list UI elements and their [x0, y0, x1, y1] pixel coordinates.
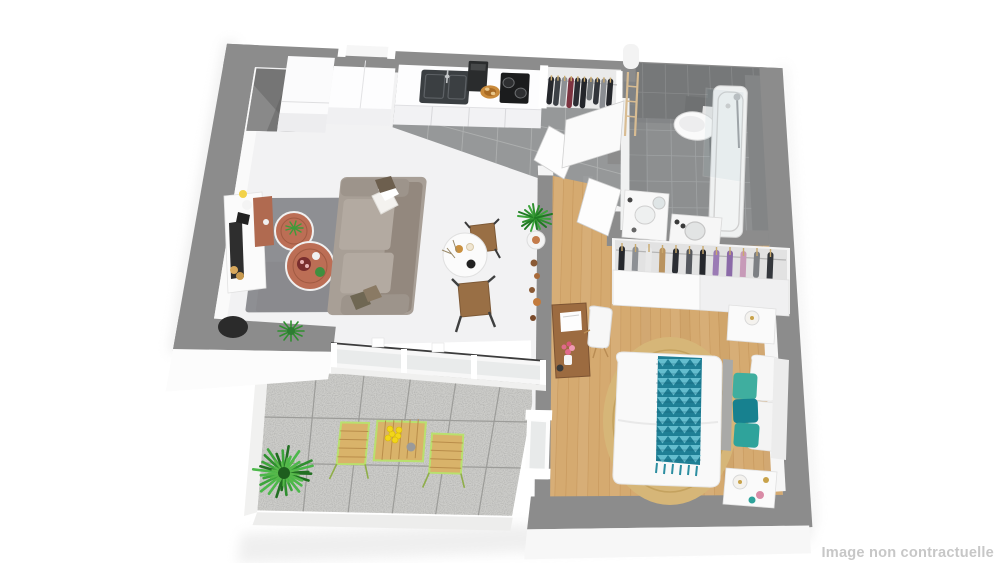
- svg-text:Image non contractuelle: Image non contractuelle: [822, 545, 994, 561]
